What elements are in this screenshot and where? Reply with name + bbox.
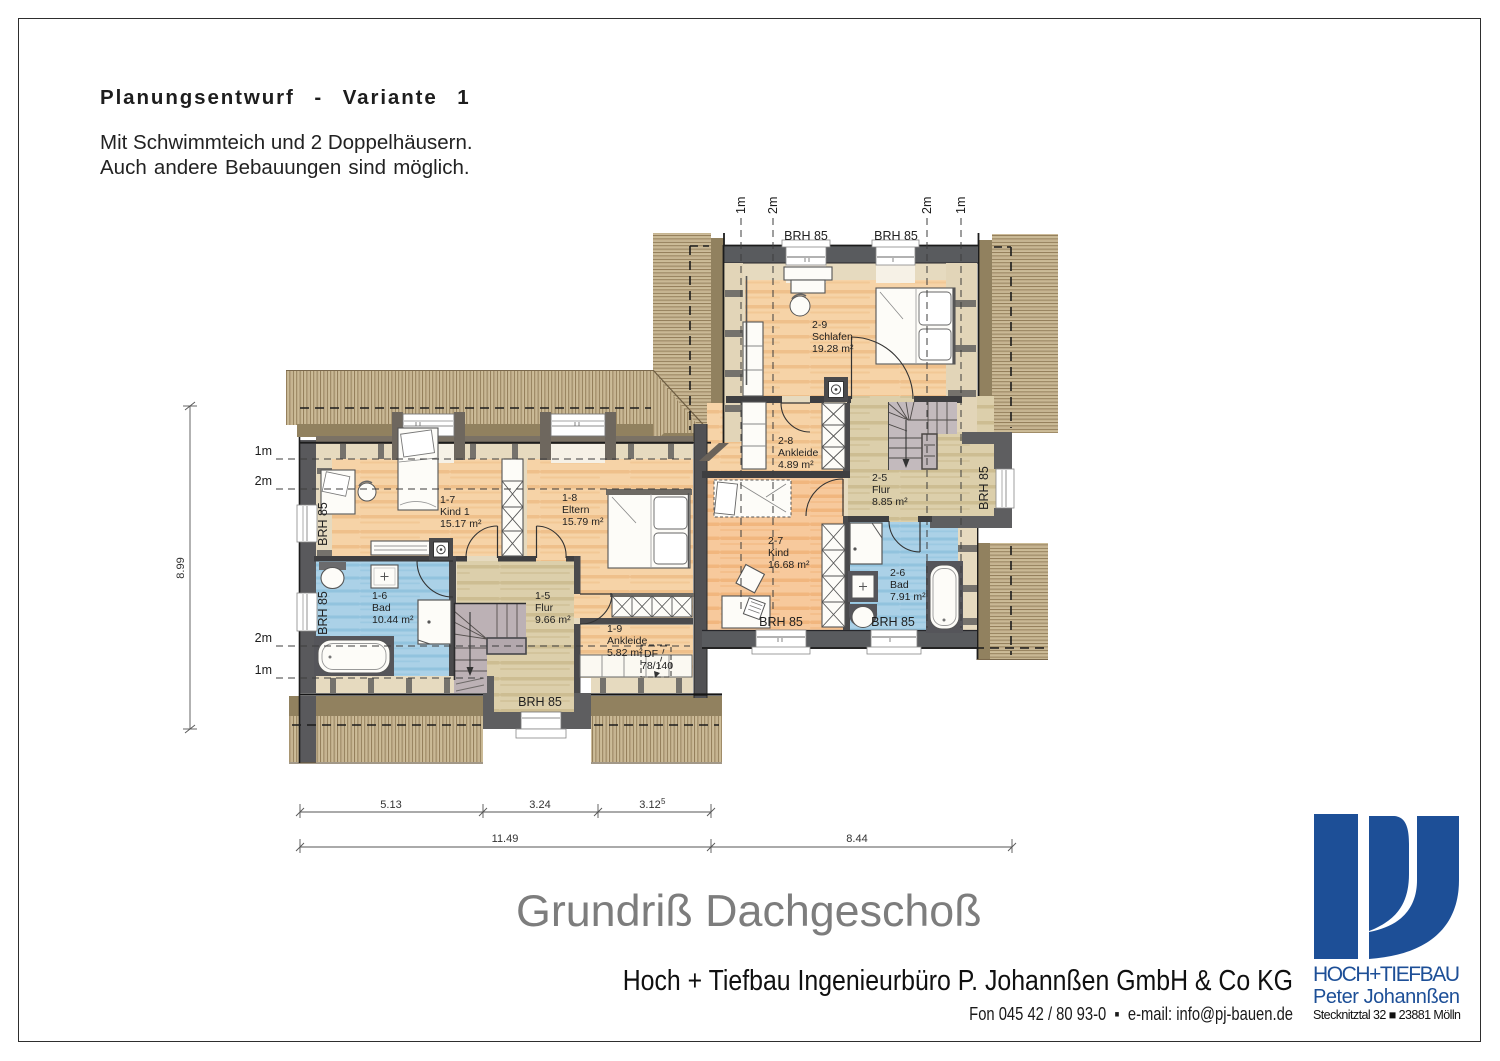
svg-text:BRH 85: BRH 85 (316, 502, 330, 546)
svg-text:16.68 m²: 16.68 m² (768, 559, 810, 571)
svg-text:BRH 85: BRH 85 (871, 615, 915, 629)
svg-text:BRH 85: BRH 85 (316, 591, 330, 635)
svg-text:11.49: 11.49 (492, 833, 519, 845)
svg-text:Kind 1: Kind 1 (440, 506, 470, 518)
svg-text:1m: 1m (255, 663, 272, 677)
svg-text:2-9: 2-9 (812, 319, 827, 331)
svg-text:8.99: 8.99 (175, 557, 187, 578)
svg-text:1m: 1m (255, 444, 272, 458)
svg-text:5: 5 (661, 797, 666, 806)
svg-text:1m: 1m (734, 197, 748, 214)
svg-text:5.13: 5.13 (380, 799, 401, 811)
svg-text:2m: 2m (255, 631, 272, 645)
svg-text:2m: 2m (766, 197, 780, 214)
svg-text:2-8: 2-8 (778, 435, 793, 447)
svg-text:Flur: Flur (535, 602, 554, 614)
svg-text:9.66 m²: 9.66 m² (535, 614, 571, 626)
svg-text:Schlafen: Schlafen (812, 331, 853, 343)
svg-text:Flur: Flur (872, 484, 891, 496)
svg-text:1m: 1m (954, 197, 968, 214)
svg-text:1-8: 1-8 (562, 492, 577, 504)
svg-text:BRH 85: BRH 85 (977, 466, 991, 510)
svg-text:Peter Johannßen: Peter Johannßen (1313, 986, 1460, 1008)
svg-text:2m: 2m (920, 197, 934, 214)
svg-text:78/140: 78/140 (641, 660, 673, 672)
svg-text:BRH 85: BRH 85 (784, 229, 828, 243)
svg-text:4.89 m²: 4.89 m² (778, 459, 814, 471)
svg-text:Eltern: Eltern (562, 504, 590, 516)
svg-text:3.12: 3.12 (639, 799, 660, 811)
svg-text:8.44: 8.44 (846, 833, 867, 845)
svg-text:3.24: 3.24 (529, 799, 550, 811)
svg-text:1-9: 1-9 (607, 623, 622, 635)
svg-text:7.91 m²: 7.91 m² (890, 591, 926, 603)
svg-text:10.44 m²: 10.44 m² (372, 614, 414, 626)
svg-text:15.17 m²: 15.17 m² (440, 518, 482, 530)
svg-text:19.28 m²: 19.28 m² (812, 343, 854, 355)
svg-text:1-5: 1-5 (535, 590, 550, 602)
svg-text:DF: DF (644, 648, 658, 660)
svg-text:Bad: Bad (372, 602, 391, 614)
svg-text:15.79 m²: 15.79 m² (562, 516, 604, 528)
svg-text:BRH 85: BRH 85 (759, 615, 803, 629)
svg-text:Bad: Bad (890, 579, 909, 591)
svg-text:Ankleide: Ankleide (607, 635, 647, 647)
svg-text:1-6: 1-6 (372, 590, 387, 602)
svg-text:2-5: 2-5 (872, 472, 887, 484)
svg-text:Stecknitztal 32 ■ 23881 Mölln: Stecknitztal 32 ■ 23881 Mölln (1313, 1008, 1461, 1022)
svg-text:2-6: 2-6 (890, 567, 905, 579)
svg-text:BRH 85: BRH 85 (518, 695, 562, 709)
svg-text:HOCH+TIEFBAU: HOCH+TIEFBAU (1313, 963, 1460, 986)
svg-text:5.82 m²: 5.82 m² (607, 647, 643, 659)
svg-text:1-7: 1-7 (440, 494, 455, 506)
svg-text:Ankleide: Ankleide (778, 447, 818, 459)
svg-text:2-7: 2-7 (768, 535, 783, 547)
svg-text:Kind: Kind (768, 547, 789, 559)
svg-text:BRH 85: BRH 85 (874, 229, 918, 243)
svg-text:8.85 m²: 8.85 m² (872, 496, 908, 508)
svg-text:2m: 2m (255, 474, 272, 488)
